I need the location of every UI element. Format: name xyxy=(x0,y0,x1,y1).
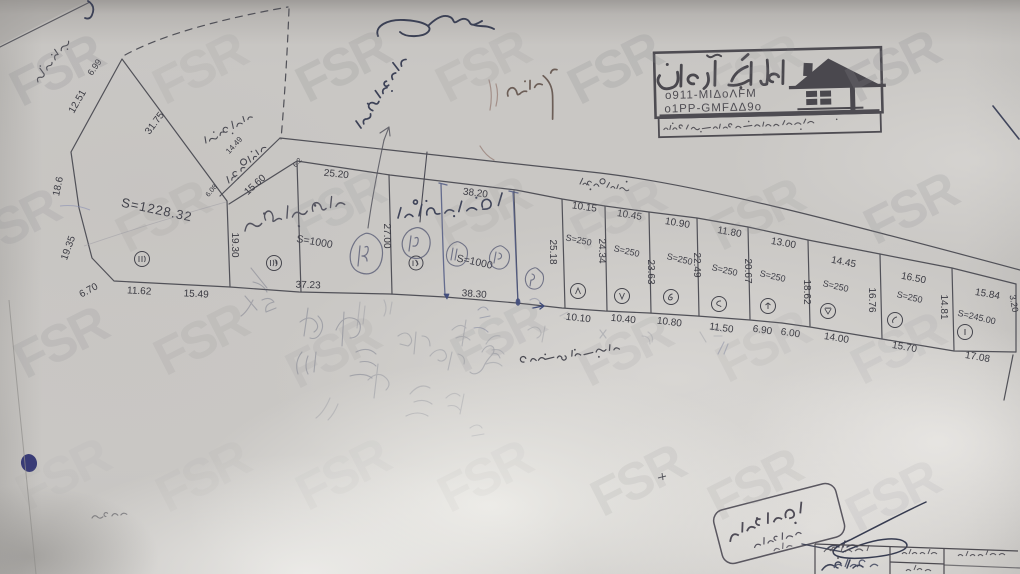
svg-text:FSR: FSR xyxy=(144,20,257,116)
svg-text:FSR: FSR xyxy=(837,448,950,544)
svg-text:FSR: FSR xyxy=(707,298,820,394)
svg-text:FSR: FSR xyxy=(582,432,695,528)
svg-text:FSR: FSR xyxy=(145,291,258,387)
svg-text:FSR: FSR xyxy=(427,164,540,260)
svg-text:20.67: 20.67 xyxy=(742,258,753,283)
svg-text:25.18: 25.18 xyxy=(547,239,558,264)
svg-text:FSR: FSR xyxy=(442,288,555,384)
svg-text:FSR: FSR xyxy=(427,18,540,114)
svg-text:S=250: S=250 xyxy=(711,262,739,278)
svg-text:S=245.00: S=245.00 xyxy=(957,308,997,326)
svg-text:S=250: S=250 xyxy=(759,268,787,284)
svg-text:FSR: FSR xyxy=(699,436,812,532)
svg-text:14.49: 14.49 xyxy=(224,135,245,156)
svg-text:15.60: 15.60 xyxy=(242,172,268,197)
svg-text:19.30: 19.30 xyxy=(229,232,240,257)
svg-text:FSR: FSR xyxy=(842,300,955,396)
svg-text:27.00: 27.00 xyxy=(381,223,392,248)
svg-text:FSR: FSR xyxy=(147,428,260,524)
svg-text:FSR: FSR xyxy=(7,426,120,522)
svg-text:16.50: 16.50 xyxy=(900,271,927,287)
svg-text:FSR: FSR xyxy=(287,18,400,114)
svg-text:38.30: 38.30 xyxy=(461,288,487,301)
svg-text:FSR: FSR xyxy=(287,426,400,522)
svg-text:18.62: 18.62 xyxy=(801,279,812,304)
svg-text:FSR: FSR xyxy=(107,168,220,264)
svg-text:31.75: 31.75 xyxy=(143,110,167,137)
svg-text:15.49: 15.49 xyxy=(183,288,209,300)
svg-text:S=250: S=250 xyxy=(896,289,924,305)
svg-text:FSR: FSR xyxy=(701,166,814,262)
svg-text:S=250: S=250 xyxy=(666,251,694,267)
svg-text:11.62: 11.62 xyxy=(127,285,152,297)
svg-text:18.6: 18.6 xyxy=(51,175,66,197)
svg-text:FSR: FSR xyxy=(5,294,118,390)
svg-text:17.08: 17.08 xyxy=(964,350,991,365)
svg-text:S=250: S=250 xyxy=(822,278,850,294)
svg-text:37.23: 37.23 xyxy=(295,280,321,292)
svg-text:10.10: 10.10 xyxy=(565,312,591,326)
svg-text:FSR: FSR xyxy=(429,428,542,524)
svg-text:14.45: 14.45 xyxy=(830,255,857,271)
svg-text:14.81: 14.81 xyxy=(938,294,949,319)
svg-text:19.35: 19.35 xyxy=(59,234,78,262)
svg-text:3.20: 3.20 xyxy=(1008,294,1020,313)
svg-text:23.63: 23.63 xyxy=(645,259,656,284)
svg-text:15.84: 15.84 xyxy=(974,287,1001,302)
svg-text:6.2: 6.2 xyxy=(292,157,304,169)
svg-text:FSR: FSR xyxy=(277,304,390,400)
svg-text:6.08: 6.08 xyxy=(205,183,219,198)
svg-text:FSR: FSR xyxy=(855,160,968,256)
svg-text:16.76: 16.76 xyxy=(866,287,877,312)
